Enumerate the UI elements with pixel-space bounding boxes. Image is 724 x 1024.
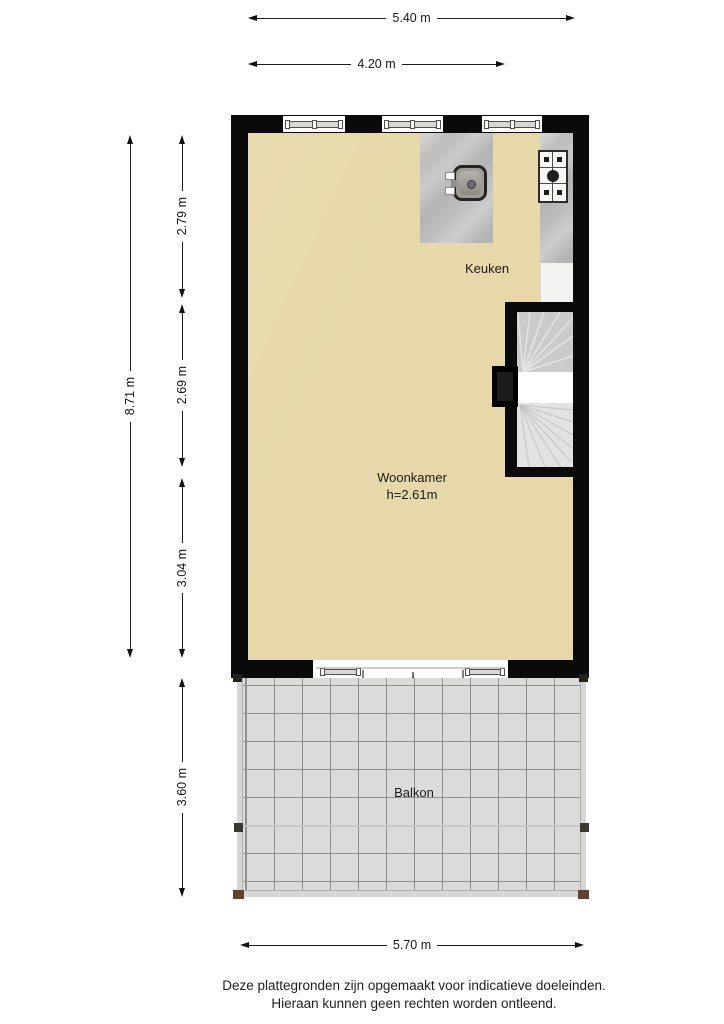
faucet-handle-top — [445, 172, 455, 180]
arrowhead-up-icon — [127, 135, 133, 144]
window-mullion — [410, 120, 415, 129]
dimension-top-partial: 4.20 m — [248, 57, 505, 71]
living-room-height: h=2.61m — [342, 486, 482, 503]
arrowhead-up-icon — [179, 304, 185, 313]
dimension-line — [130, 144, 131, 371]
arrowhead-down-icon — [179, 289, 185, 298]
dimension-line — [437, 945, 575, 946]
dimension-line — [437, 18, 566, 19]
dimension-label: 8.71 m — [123, 371, 137, 421]
window-top-3 — [482, 116, 542, 132]
staircase — [517, 312, 573, 467]
railing-post — [234, 823, 243, 832]
burner-icon — [557, 157, 562, 162]
burner-icon — [544, 157, 549, 162]
dimension-label: 4.20 m — [351, 57, 401, 71]
railing-post-wood — [578, 890, 589, 899]
arrowhead-left-icon — [240, 942, 249, 948]
floorplan-page: 5.40 m 4.20 m 8.71 m 2.79 m 2.69 m 3.04 … — [0, 0, 724, 1024]
dimension-line — [249, 945, 387, 946]
dimension-label: 2.69 m — [175, 360, 189, 410]
stairwell-door — [492, 366, 518, 407]
disclaimer-line-1: Deze plattegronden zijn opgemaakt voor i… — [104, 977, 724, 995]
window-top-1 — [283, 116, 345, 132]
dimension-line — [182, 687, 183, 762]
arrowhead-down-icon — [179, 649, 185, 658]
balcony-divider-line — [243, 825, 580, 827]
burner-large-icon — [547, 170, 559, 182]
arrowhead-left-icon — [248, 15, 257, 21]
arrowhead-down-icon — [179, 888, 185, 897]
disclaimer-line-2: Hieraan kunnen geen rechten worden ontle… — [104, 995, 724, 1013]
stairwell-door-panel — [497, 372, 513, 401]
dimension-line — [182, 313, 183, 360]
sink-drain — [467, 180, 476, 189]
stove — [538, 150, 568, 203]
window-mullion — [510, 120, 515, 129]
arrowhead-up-icon — [179, 135, 185, 144]
arrowhead-down-icon — [127, 649, 133, 658]
arrowhead-left-icon — [248, 61, 257, 67]
dimension-line — [182, 593, 183, 649]
stove-grate-line — [540, 167, 566, 168]
dimension-line — [182, 813, 183, 888]
balcony-railing-bottom — [237, 890, 586, 897]
dimension-left-top: 2.79 m — [175, 135, 189, 298]
dimension-line — [257, 64, 351, 65]
dimension-left-balcony: 3.60 m — [175, 678, 189, 897]
room-label-living: Woonkamer h=2.61m — [342, 469, 482, 503]
dimension-line — [257, 18, 386, 19]
balcony-railing-right — [580, 678, 586, 890]
dimension-line — [182, 487, 183, 543]
dimension-left-bottom: 3.04 m — [175, 478, 189, 658]
dimension-label: 5.70 m — [387, 938, 437, 952]
kitchen-sink — [453, 165, 487, 201]
dimension-line — [182, 411, 183, 458]
balcony-railing-left — [237, 678, 243, 890]
arrowhead-right-icon — [566, 15, 575, 21]
dimension-line — [182, 144, 183, 191]
railing-post — [233, 674, 242, 682]
arrowhead-up-icon — [179, 478, 185, 487]
dimension-label: 5.40 m — [386, 11, 436, 25]
burner-icon — [557, 190, 562, 195]
burner-icon — [544, 190, 549, 195]
railing-post — [580, 823, 589, 832]
dimension-top-total: 5.40 m — [248, 11, 575, 25]
arrowhead-right-icon — [575, 942, 584, 948]
stove-grate-line — [540, 183, 566, 184]
window-top-2 — [382, 116, 443, 132]
dimension-line — [402, 64, 496, 65]
dimension-left-middle: 2.69 m — [175, 304, 189, 467]
stairwell-wall-bottom — [505, 467, 573, 477]
arrowhead-up-icon — [179, 678, 185, 687]
living-room-name: Woonkamer — [342, 469, 482, 486]
railing-post — [579, 674, 588, 682]
dimension-left-total: 8.71 m — [123, 135, 137, 658]
faucet-handle-bottom — [445, 187, 455, 195]
kitchen-appliance — [540, 263, 573, 302]
railing-post-wood — [233, 890, 244, 899]
arrowhead-down-icon — [179, 458, 185, 467]
room-label-balcony: Balkon — [374, 784, 454, 801]
dimension-label: 2.79 m — [175, 191, 189, 241]
dimension-bottom-balcony: 5.70 m — [240, 938, 584, 952]
room-label-kitchen: Keuken — [447, 260, 527, 277]
dimension-label: 3.60 m — [175, 762, 189, 812]
arrowhead-right-icon — [496, 61, 505, 67]
disclaimer: Deze plattegronden zijn opgemaakt voor i… — [104, 977, 724, 1013]
faucet-spout — [451, 180, 457, 187]
dimension-label: 3.04 m — [175, 543, 189, 593]
window-mullion — [312, 120, 317, 129]
dimension-line — [182, 242, 183, 289]
stairs-landing — [517, 372, 573, 403]
dimension-line — [130, 422, 131, 649]
